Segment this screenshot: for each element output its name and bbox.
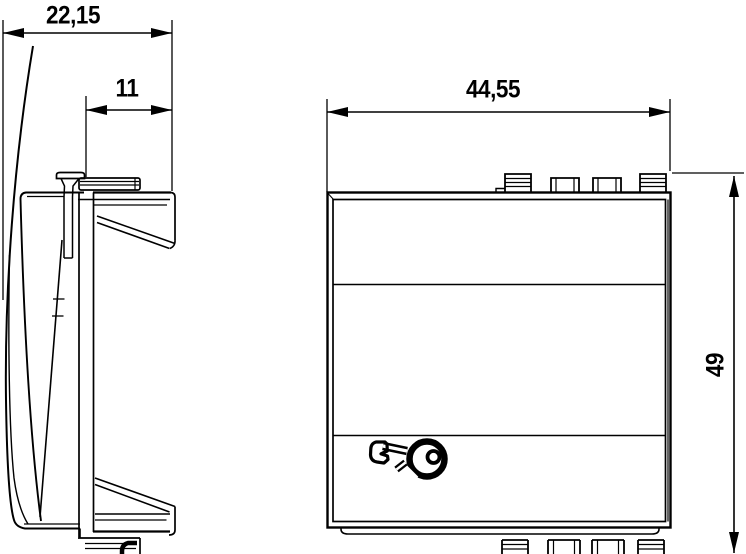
dimension-label-front-height: 49 bbox=[702, 353, 731, 377]
technical-drawing: 22,15 11 44,55 49 bbox=[0, 0, 746, 554]
dimension-label-front-width: 44,55 bbox=[466, 76, 520, 105]
arrowhead bbox=[151, 28, 172, 38]
side-top-flange bbox=[78, 193, 175, 249]
arrowhead bbox=[327, 107, 348, 117]
side-ridged-bar bbox=[79, 178, 140, 190]
arrowhead bbox=[3, 28, 24, 38]
arrowhead bbox=[151, 105, 172, 115]
side-view bbox=[6, 46, 175, 554]
side-bottom-flange bbox=[93, 478, 175, 535]
arrowhead bbox=[729, 176, 739, 197]
key-icon bbox=[371, 442, 445, 480]
dimension-22-15 bbox=[3, 20, 172, 300]
dimension-lines bbox=[3, 20, 744, 553]
arrowhead bbox=[86, 105, 107, 115]
dimension-label-side-width: 22,15 bbox=[46, 2, 100, 31]
drawing-linework bbox=[0, 0, 746, 554]
side-bottom-clip bbox=[78, 538, 140, 554]
dimension-label-side-inner-width: 11 bbox=[116, 75, 139, 104]
arrowhead bbox=[649, 107, 670, 117]
dimension-11 bbox=[86, 96, 172, 177]
arrowhead bbox=[729, 532, 739, 553]
front-bottom-tabs bbox=[502, 540, 664, 554]
front-view bbox=[328, 174, 671, 554]
front-top-tabs bbox=[496, 174, 666, 192]
